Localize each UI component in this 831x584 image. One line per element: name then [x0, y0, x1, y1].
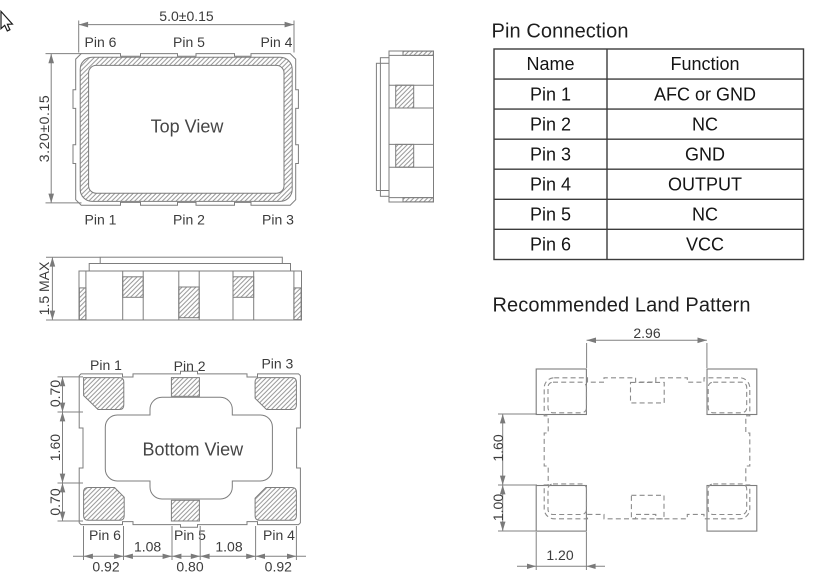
svg-text:Pin 1: Pin 1 [530, 84, 571, 104]
svg-text:NC: NC [692, 114, 718, 134]
svg-text:Top View: Top View [151, 117, 225, 137]
svg-text:Pin 3: Pin 3 [262, 212, 294, 228]
svg-text:Pin 4: Pin 4 [261, 34, 293, 50]
svg-text:Pin 4: Pin 4 [530, 175, 571, 195]
svg-text:Pin 2: Pin 2 [530, 114, 571, 134]
svg-text:1.60: 1.60 [490, 434, 506, 461]
svg-text:1.20: 1.20 [546, 547, 573, 563]
svg-text:Pin Connection: Pin Connection [492, 20, 629, 42]
svg-text:Pin 5: Pin 5 [530, 205, 571, 225]
svg-text:0.80: 0.80 [176, 559, 203, 575]
svg-text:1.60: 1.60 [47, 434, 63, 461]
svg-text:NC: NC [692, 205, 718, 225]
svg-text:3.20±0.15: 3.20±0.15 [36, 95, 52, 163]
svg-text:Function: Function [670, 54, 739, 74]
svg-text:Pin 5: Pin 5 [174, 527, 206, 543]
svg-text:Pin 2: Pin 2 [173, 212, 205, 228]
svg-text:Pin 5: Pin 5 [173, 34, 205, 50]
svg-text:Bottom View: Bottom View [142, 440, 244, 460]
svg-text:1.08: 1.08 [215, 539, 242, 555]
svg-text:OUTPUT: OUTPUT [668, 175, 742, 195]
svg-text:VCC: VCC [686, 235, 724, 255]
svg-text:0.70: 0.70 [47, 488, 63, 515]
svg-text:Pin 6: Pin 6 [85, 34, 117, 50]
svg-text:0.92: 0.92 [265, 559, 292, 575]
svg-text:GND: GND [685, 144, 725, 164]
svg-text:Pin 4: Pin 4 [263, 527, 295, 543]
svg-text:1.00: 1.00 [490, 494, 506, 521]
svg-text:1.08: 1.08 [134, 539, 161, 555]
svg-text:5.0±0.15: 5.0±0.15 [159, 8, 214, 24]
svg-text:0.92: 0.92 [92, 559, 119, 575]
svg-text:Pin 6: Pin 6 [89, 527, 121, 543]
svg-text:1.5 MAX: 1.5 MAX [36, 261, 52, 315]
svg-text:0.70: 0.70 [47, 380, 63, 407]
svg-text:2.96: 2.96 [633, 325, 660, 341]
svg-text:Pin 1: Pin 1 [85, 212, 117, 228]
svg-text:Pin 3: Pin 3 [530, 144, 571, 164]
svg-text:Recommended Land Pattern: Recommended Land Pattern [493, 295, 751, 317]
svg-text:Pin 1: Pin 1 [90, 357, 122, 373]
svg-text:Pin 6: Pin 6 [530, 235, 571, 255]
svg-text:Pin 3: Pin 3 [261, 356, 293, 372]
svg-text:AFC or GND: AFC or GND [654, 84, 756, 104]
svg-text:Name: Name [526, 54, 574, 74]
svg-text:Pin 2: Pin 2 [174, 358, 206, 374]
